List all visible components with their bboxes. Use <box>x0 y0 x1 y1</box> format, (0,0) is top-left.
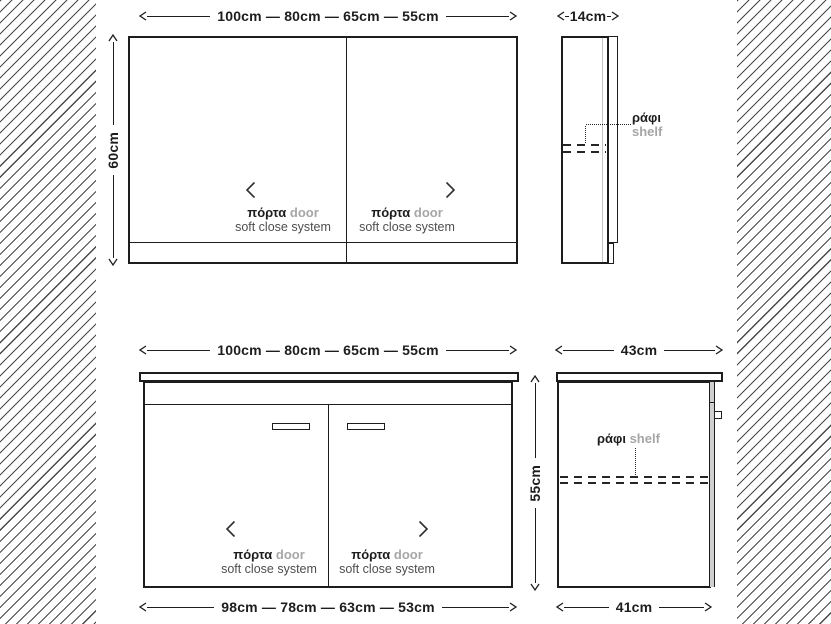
dimension-line <box>446 16 509 17</box>
shelf-label-greek: ράφι <box>632 111 662 125</box>
right-hatch-border <box>737 0 831 624</box>
dimension-line <box>442 607 509 608</box>
vanity-shelf-label: ράφι shelf <box>597 432 660 446</box>
shelf-leader-line <box>586 124 631 125</box>
mirror-side-inner-line <box>602 38 603 262</box>
shelf-dashed-line <box>560 476 709 478</box>
door-handle <box>272 423 310 430</box>
arrow-left-icon <box>555 602 564 612</box>
arrow-right-icon <box>509 11 518 21</box>
door-label-english: door <box>414 205 443 220</box>
arrow-right-icon <box>509 602 518 612</box>
arrow-right-icon <box>611 11 620 21</box>
dimension-line <box>535 383 536 458</box>
arrow-left-icon <box>138 602 147 612</box>
mirror-left-door-label: πόρτα door soft close system <box>226 206 340 234</box>
mirror-side-door-panel-bottom <box>608 243 614 264</box>
vanity-bottom-depth-dimension: 41cm <box>555 601 713 613</box>
dimension-text: 100cm — 80cm — 65cm — 55cm <box>210 344 446 356</box>
mirror-shelf-label: ράφι shelf <box>632 111 662 139</box>
mirror-front-width-dimension: 100cm — 80cm — 65cm — 55cm <box>138 10 518 22</box>
mirror-door-divider <box>346 37 347 263</box>
arrow-up-icon <box>108 33 118 42</box>
door-open-right-icon <box>417 520 430 538</box>
door-soft-close-label: soft close system <box>210 562 328 576</box>
furniture-dimension-drawing: 100cm — 80cm — 65cm — 55cm 60cm πόρτα do… <box>0 0 831 624</box>
arrow-up-icon <box>530 374 540 383</box>
shelf-label-english: shelf <box>632 125 662 139</box>
shelf-label-english: shelf <box>630 431 660 446</box>
door-label-greek: πόρτα <box>371 205 410 220</box>
shelf-dashed-line <box>560 482 709 484</box>
dimension-text: 100cm — 80cm — 65cm — 55cm <box>210 10 446 22</box>
shelf-leader-line <box>635 448 636 475</box>
dimension-text: 60cm <box>107 125 119 176</box>
door-label-greek: πόρτα <box>247 205 286 220</box>
door-soft-close-label: soft close system <box>334 562 440 576</box>
arrow-left-icon <box>554 345 563 355</box>
door-open-left-icon <box>244 181 257 199</box>
dimension-line <box>113 175 114 258</box>
dimension-text: 98cm — 78cm — 63cm — 53cm <box>214 601 442 613</box>
arrow-right-icon <box>704 602 713 612</box>
dimension-line <box>147 16 210 17</box>
vanity-front-width-dimension: 100cm — 80cm — 65cm — 55cm <box>138 344 518 356</box>
dimension-line <box>147 607 214 608</box>
door-open-right-icon <box>444 181 457 199</box>
arrow-left-icon <box>138 345 147 355</box>
mirror-bottom-rail-line <box>129 242 517 243</box>
door-label-english: door <box>276 547 305 562</box>
mirror-depth-dimension: 14cm <box>556 10 620 22</box>
door-handle <box>347 423 385 430</box>
dimension-text: 43cm <box>614 344 665 356</box>
vanity-right-door-label: πόρτα door soft close system <box>334 548 440 576</box>
shelf-dashed-line <box>563 151 606 153</box>
door-soft-close-label: soft close system <box>226 220 340 234</box>
arrow-down-icon <box>530 583 540 592</box>
vanity-door-divider <box>328 405 329 587</box>
dimension-line <box>535 508 536 583</box>
dimension-text: 41cm <box>609 601 660 613</box>
arrow-left-icon <box>138 11 147 21</box>
side-door-handle <box>714 411 722 419</box>
door-soft-close-label: soft close system <box>352 220 462 234</box>
vanity-top-depth-dimension: 43cm <box>554 344 724 356</box>
dimension-line <box>564 607 609 608</box>
door-label-english: door <box>290 205 319 220</box>
vanity-side-door-joint <box>709 402 715 403</box>
dimension-line <box>664 350 715 351</box>
dimension-line <box>659 607 704 608</box>
vanity-bottom-width-dimension: 98cm — 78cm — 63cm — 53cm <box>138 601 518 613</box>
dimension-text: 14cm <box>569 10 608 22</box>
vanity-left-door-label: πόρτα door soft close system <box>210 548 328 576</box>
door-label-greek: πόρτα <box>351 547 390 562</box>
dimension-line <box>113 42 114 125</box>
arrow-left-icon <box>556 11 565 21</box>
dimension-line <box>147 350 210 351</box>
mirror-height-dimension: 60cm <box>107 33 119 267</box>
shelf-dashed-line <box>563 144 606 146</box>
shelf-leader-line <box>585 126 586 143</box>
shelf-label-greek: ράφι <box>597 431 626 446</box>
mirror-right-door-label: πόρτα door soft close system <box>352 206 462 234</box>
door-label-greek: πόρτα <box>233 547 272 562</box>
door-label-english: door <box>394 547 423 562</box>
dimension-text: 55cm <box>529 458 541 509</box>
left-hatch-border <box>0 0 96 624</box>
vanity-cabinet-side-view <box>557 381 711 588</box>
door-open-left-icon <box>224 520 237 538</box>
arrow-right-icon <box>715 345 724 355</box>
vanity-height-dimension: 55cm <box>529 374 541 592</box>
dimension-line <box>446 350 509 351</box>
arrow-right-icon <box>509 345 518 355</box>
dimension-line <box>563 350 614 351</box>
mirror-side-door-panel <box>608 36 618 243</box>
arrow-down-icon <box>108 258 118 267</box>
